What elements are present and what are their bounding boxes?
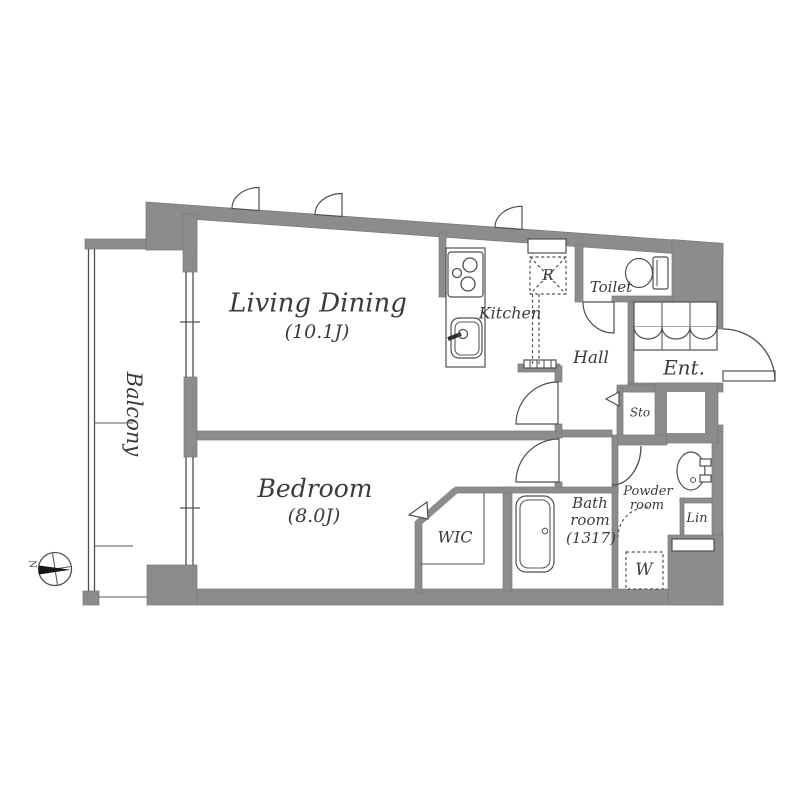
wic-label: WIC (437, 530, 472, 547)
wash-basin (677, 452, 705, 490)
hall-label: Hall (573, 350, 609, 368)
wall-segment (503, 487, 512, 591)
wall-segment (415, 522, 422, 593)
wall-segment (83, 591, 99, 605)
linen-label: Lin (686, 512, 707, 526)
wall-segment (455, 487, 618, 493)
wall-segment (439, 232, 446, 297)
wall-segment (147, 565, 197, 605)
bathroom-label-2: room (570, 513, 609, 529)
entry-step-arrow (606, 392, 619, 406)
wall-segment (575, 245, 583, 302)
wall-segment (197, 431, 557, 440)
bathroom-label-1: Bath (572, 496, 608, 512)
floor-plan-page: Living Dining (10.1J) Bedroom (8.0J) Bal… (0, 0, 800, 800)
powder-room-label-1: Powder (623, 485, 672, 499)
wic-entry-arrow (409, 502, 428, 519)
bedroom-area: (8.0J) (288, 507, 341, 527)
wall-segment (628, 302, 634, 390)
storage-label: Sto (630, 407, 650, 420)
toilet-door-arc (583, 302, 614, 333)
bedroom-label: Bedroom (258, 476, 373, 502)
bathtub (516, 496, 554, 572)
entrance-door-slab (723, 371, 775, 381)
compass (39, 553, 72, 586)
toilet-label: Toilet (590, 280, 632, 296)
floor-plan-drawing (0, 0, 800, 800)
top-window-bump (315, 194, 342, 217)
bedroom-door-arc (516, 439, 559, 482)
wall-segment (85, 239, 146, 249)
wall-segment (562, 430, 612, 437)
wall-segment (184, 377, 197, 457)
wall-segment (183, 214, 197, 272)
wall-niche (528, 239, 566, 253)
wall-segment (612, 296, 672, 302)
entrance-label: Ent. (663, 358, 705, 379)
balcony-label: Balcony (123, 372, 145, 456)
living-dining-area: (10.1J) (285, 323, 350, 343)
top-window-bump (232, 188, 259, 211)
wall-segment (612, 437, 618, 588)
wall-segment (612, 435, 667, 445)
living-dining-label: Living Dining (229, 290, 407, 317)
top-window-bump (495, 206, 522, 229)
compass-north-label: N (26, 560, 35, 568)
refrigerator-label: R (542, 268, 553, 284)
wall-segment (197, 589, 723, 605)
toilet-tank (653, 257, 668, 289)
wall-segment (680, 498, 684, 535)
bathroom-label-3: (1317) (566, 531, 616, 547)
basin-faucet (700, 475, 711, 482)
basin-faucet (700, 459, 711, 466)
pipe-space (672, 539, 714, 551)
kitchen-label: Kitchen (479, 306, 542, 323)
ld-door-arc (516, 382, 558, 424)
wall-segment (680, 498, 712, 503)
powder-room-label-2: room (630, 499, 664, 513)
shoe-closet (634, 302, 717, 350)
storage-compartment (667, 392, 705, 433)
wall-segment (146, 202, 723, 257)
walls (83, 202, 723, 605)
washing-machine-label: W (635, 562, 652, 580)
